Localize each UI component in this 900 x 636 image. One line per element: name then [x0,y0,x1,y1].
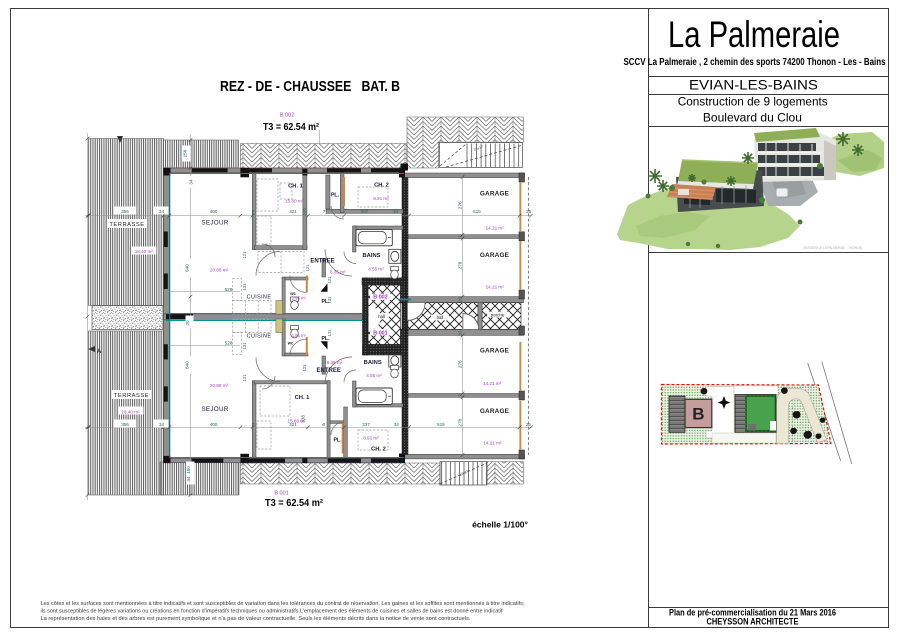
svg-text:14.21 m²: 14.21 m² [486,226,505,231]
svg-text:15.80 m²: 15.80 m² [285,198,304,203]
svg-text:A: A [97,349,102,355]
svg-text:T3 = 62.54 m²: T3 = 62.54 m² [265,497,323,509]
svg-text:15.80 m²: 15.80 m² [288,419,307,424]
svg-text:131: 131 [242,283,247,291]
svg-text:356: 356 [121,209,129,214]
svg-text:CH. 2: CH. 2 [374,183,389,189]
svg-text:CH. 2: CH. 2 [371,447,386,453]
svg-text:18.40 m²: 18.40 m² [121,410,140,415]
svg-text:14.21 m²: 14.21 m² [486,285,505,290]
svg-text:PL.: PL. [321,299,330,305]
svg-text:20.88 m²: 20.88 m² [210,267,229,272]
svg-text:B: B [692,405,704,424]
svg-text:CH. 1: CH. 1 [295,395,311,401]
svg-text:20.88 m²: 20.88 m² [210,383,229,388]
svg-text:121: 121 [242,374,247,382]
svg-text:porche: porche [491,313,505,318]
svg-text:338: 338 [302,208,307,216]
svg-text:GARAGE: GARAGE [480,191,510,198]
svg-text:Les côtes et les surfaces sont: Les côtes et les surfaces sont mentionné… [41,601,525,607]
svg-text:156: 156 [183,149,188,157]
svg-text:7: 7 [458,394,463,397]
svg-text:34: 34 [186,476,191,482]
svg-text:GARAGE: GARAGE [480,408,510,415]
svg-text:EVIAN-LES-BAINS: EVIAN-LES-BAINS [689,78,818,93]
svg-text:TERRASSE: TERRASSE [109,222,144,228]
svg-text:14.21 m²: 14.21 m² [483,381,502,386]
svg-text:121: 121 [305,264,310,272]
svg-text:CUISINE: CUISINE [247,295,272,301]
svg-text:131: 131 [242,342,247,350]
svg-text:REZ - DE - CHAUSSEE BAT. B: REZ - DE - CHAUSSEE BAT. B [220,79,400,95]
svg-text:276: 276 [458,360,463,368]
svg-text:1.95 m²: 1.95 m² [292,333,307,338]
svg-text:RESIDENCE LA PALMERAIE - THONO: RESIDENCE LA PALMERAIE - THONON [803,246,862,250]
svg-text:ENTREE: ENTREE [310,259,334,265]
svg-text:SCCV La Palmeraie , 2 chemin d: SCCV La Palmeraie , 2 chemin des sports … [624,57,886,68]
svg-text:337: 337 [362,422,370,427]
svg-text:T3 = 62.54 m²: T3 = 62.54 m² [263,121,319,133]
svg-text:PL.: PL. [331,192,340,198]
svg-text:14.21 m²: 14.21 m² [483,441,502,446]
svg-text:4.55 m²: 4.55 m² [366,373,382,378]
svg-text:PL.: PL. [321,336,330,342]
svg-text:25: 25 [526,209,532,214]
svg-text:121: 121 [242,251,247,259]
svg-text:1.95 m²: 1.95 m² [292,296,307,301]
svg-text:278: 278 [458,261,463,269]
svg-text:7: 7 [458,235,463,238]
svg-text:400: 400 [210,422,218,427]
svg-text:321: 321 [289,209,297,214]
svg-text:34: 34 [394,422,400,427]
svg-text:Construction de 9 logements: Construction de 9 logements [678,94,828,108]
svg-text:25: 25 [526,422,532,427]
svg-text:6.35 m²: 6.35 m² [330,270,346,275]
svg-text:7: 7 [252,209,255,214]
svg-text:34: 34 [189,179,194,185]
svg-text:8.91 m²: 8.91 m² [373,196,389,201]
svg-text:CH. 1: CH. 1 [288,183,304,189]
svg-text:640: 640 [185,264,190,272]
svg-text:B 002: B 002 [373,295,387,301]
svg-text:528: 528 [225,287,233,292]
svg-text:121: 121 [327,276,332,284]
svg-text:B 001: B 001 [373,330,387,336]
svg-text:34: 34 [159,422,165,427]
svg-text:ils sont susceptibles de légèr: ils sont susceptibles de légères variati… [41,609,504,615]
svg-text:20: 20 [458,331,463,337]
svg-text:515: 515 [437,422,445,427]
svg-text:hall: hall [378,314,385,319]
svg-text:BAINS: BAINS [362,253,380,259]
svg-text:wc: wc [289,291,296,296]
svg-text:TERRASSE: TERRASSE [114,393,149,399]
svg-text:B 001: B 001 [274,491,288,497]
svg-text:150: 150 [186,466,191,474]
svg-text:20: 20 [458,297,463,303]
svg-text:515: 515 [473,209,481,214]
svg-text:SEJOUR: SEJOUR [201,406,228,413]
svg-text:SEJOUR: SEJOUR [201,220,228,227]
svg-text:La Palmeraie: La Palmeraie [668,14,840,55]
svg-text:ENTREE: ENTREE [317,368,341,374]
svg-text:7: 7 [323,209,326,214]
svg-text:La représentation des haies et: La représentation des haies et des arbre… [41,616,471,622]
svg-text:528: 528 [225,341,233,346]
svg-text:34: 34 [393,209,399,214]
svg-text:278: 278 [458,419,463,427]
svg-text:GARAGE: GARAGE [480,348,510,355]
svg-text:121: 121 [302,364,307,372]
svg-text:échelle 1/100°: échelle 1/100° [472,520,528,530]
svg-text:CHEYSSON ARCHITECTE: CHEYSSON ARCHITECTE [707,617,799,627]
svg-text:276: 276 [458,201,463,209]
svg-text:34: 34 [159,209,165,214]
svg-text:356: 356 [121,422,129,427]
svg-text:18.40 m²: 18.40 m² [135,249,154,254]
svg-text:CUISINE: CUISINE [247,333,272,339]
svg-text:6.35 m²: 6.35 m² [327,360,343,365]
svg-text:hall: hall [437,315,444,320]
svg-text:PL.: PL. [333,437,342,443]
svg-text:640: 640 [185,361,190,369]
svg-text:GARAGE: GARAGE [480,252,510,259]
svg-text:8.91 m²: 8.91 m² [363,436,379,441]
svg-text:400: 400 [210,209,218,214]
svg-text:7: 7 [252,422,255,427]
svg-text:20: 20 [185,320,190,326]
svg-text:B 002: B 002 [280,113,294,119]
svg-text:337: 337 [360,209,368,214]
svg-text:wc: wc [287,341,294,346]
svg-text:Boulevard du Clou: Boulevard du Clou [703,110,802,124]
svg-text:4.55 m²: 4.55 m² [368,267,384,272]
svg-text:BAINS: BAINS [364,360,382,366]
